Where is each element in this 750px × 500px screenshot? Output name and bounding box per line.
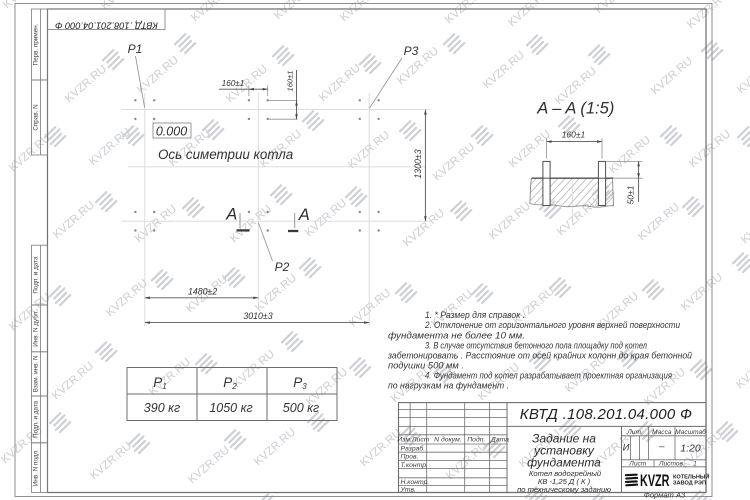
svg-text:И: И	[623, 443, 630, 454]
svg-text:по техническому заданию: по техническому заданию	[517, 485, 611, 494]
svg-text:Инв. N дубл.: Инв. N дубл.	[31, 310, 39, 347]
svg-text:КОТЕЛЬНЫЙ: КОТЕЛЬНЫЙ	[673, 472, 709, 480]
svg-text:4. Фундамент под котел разраба: 4. Фундамент под котел разрабатывает про…	[425, 371, 672, 381]
svg-text:0.000: 0.000	[156, 125, 187, 139]
svg-text:A: A	[298, 206, 310, 224]
svg-text:Н.контр.: Н.контр.	[401, 479, 430, 486]
svg-text:Формат А3: Формат А3	[644, 490, 686, 499]
svg-text:КВТД .108.201.04.000 Ф: КВТД .108.201.04.000 Ф	[520, 406, 693, 423]
svg-text:1:20: 1:20	[680, 443, 701, 455]
svg-text:Т.контр.: Т.контр.	[401, 462, 429, 469]
svg-text:50±1: 50±1	[626, 185, 636, 204]
svg-text:P3: P3	[404, 44, 419, 58]
svg-text:3010±3: 3010±3	[243, 311, 272, 321]
svg-text:Лит.: Лит.	[626, 429, 643, 436]
svg-text:160±1: 160±1	[222, 79, 245, 88]
svg-text:Подп. и дата: Подп. и дата	[32, 256, 39, 294]
svg-text:Подп.: Подп.	[467, 435, 485, 443]
svg-text:500 кг: 500 кг	[283, 401, 319, 415]
svg-text:Инв. N подл.: Инв. N подл.	[32, 449, 39, 486]
svg-text:A – A (1:5): A – A (1:5)	[536, 100, 614, 118]
svg-text:фундамента: фундамента	[527, 456, 601, 470]
svg-text:P2: P2	[275, 260, 290, 274]
svg-text:ЗАВОД РЭП: ЗАВОД РЭП	[673, 481, 706, 487]
svg-text:Изм.Лист: Изм.Лист	[397, 436, 429, 443]
svg-text:1. * Размер для справок .: 1. * Размер для справок .	[425, 310, 525, 320]
svg-text:по нагрузкам на фундамент .: по нагрузкам на фундамент .	[388, 381, 509, 391]
svg-text:160±1: 160±1	[286, 70, 295, 91]
svg-text:390 кг: 390 кг	[144, 401, 180, 415]
svg-text:КВТД .108.201.04.000 Ф: КВТД .108.201.04.000 Ф	[54, 21, 157, 31]
svg-text:Листов: Листов	[658, 460, 684, 467]
svg-text:1: 1	[693, 460, 697, 467]
svg-text:фундамента не более 10 мм.: фундамента не более 10 мм.	[388, 330, 525, 340]
svg-text:Взам. инв. N: Взам. инв. N	[32, 355, 39, 392]
svg-text:1050 кг: 1050 кг	[209, 401, 252, 415]
svg-text:A: A	[225, 206, 237, 224]
svg-text:подушки 500 мм .: подушки 500 мм .	[388, 361, 464, 371]
svg-text:Масштаб: Масштаб	[675, 428, 706, 436]
svg-text:1300±3: 1300±3	[413, 149, 423, 178]
svg-text:–: –	[658, 442, 665, 453]
svg-text:Пров.: Пров.	[401, 454, 419, 461]
svg-text:1480±2: 1480±2	[188, 287, 217, 297]
svg-text:Справ. N: Справ. N	[32, 104, 39, 131]
svg-text:забетонировать . Расстояние от: забетонировать . Расстояние от осей край…	[387, 351, 692, 361]
svg-text:160±1: 160±1	[562, 130, 586, 140]
svg-text:Дата: Дата	[490, 436, 509, 443]
svg-text:3. В случае отсутствия бетонно: 3. В случае отсутствия бетонного пола пл…	[425, 340, 647, 350]
svg-text:P1: P1	[128, 42, 143, 56]
svg-text:Утв.: Утв.	[400, 486, 417, 493]
svg-text:Перв. примен.: Перв. примен.	[32, 23, 39, 65]
svg-text:Разраб.: Разраб.	[401, 445, 426, 453]
svg-text:2. Отклонение от горизонтально: 2. Отклонение от горизонтального уровня …	[424, 320, 680, 330]
svg-text:Ось симетрии котла: Ось симетрии котла	[158, 147, 293, 162]
svg-text:N докум.: N докум.	[434, 435, 462, 443]
svg-text:KVZR: KVZR	[640, 472, 670, 490]
svg-text:Масса: Масса	[652, 429, 672, 436]
svg-text:Лист: Лист	[628, 460, 646, 467]
svg-text:Подп. и дата: Подп. и дата	[32, 400, 39, 438]
